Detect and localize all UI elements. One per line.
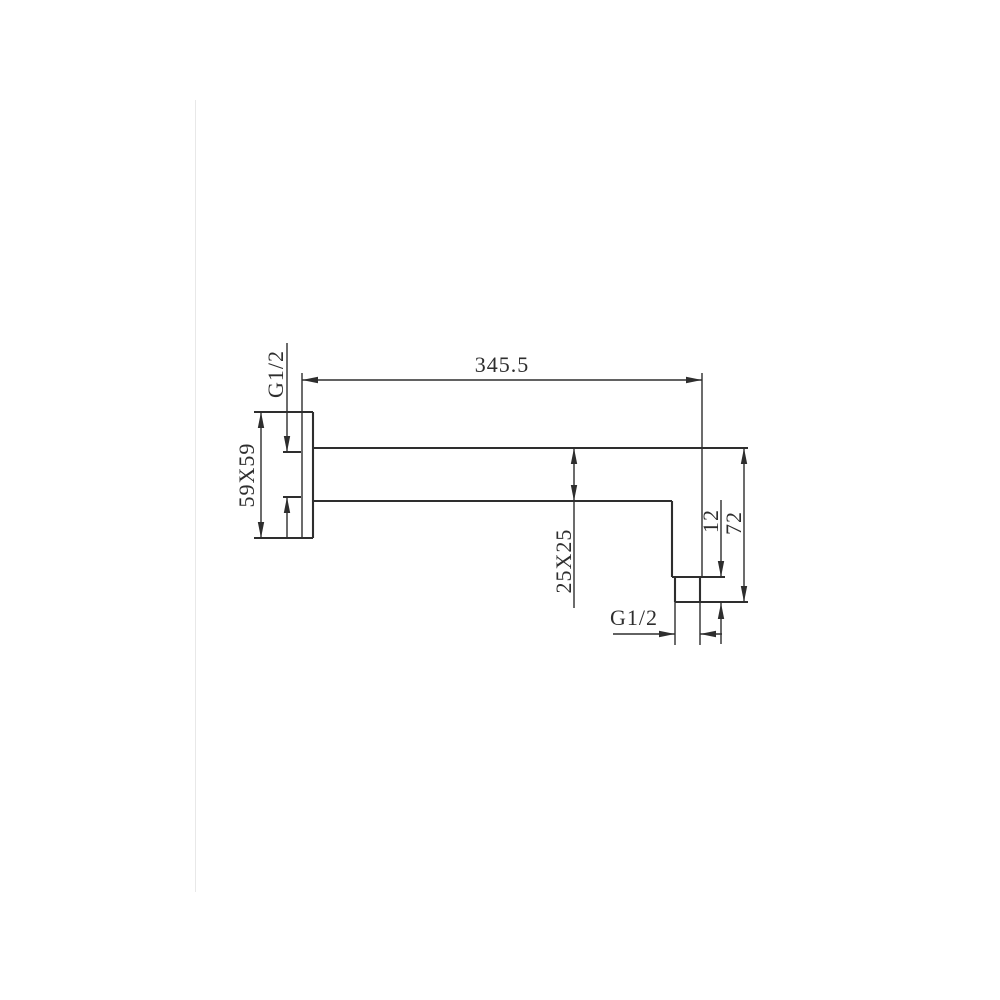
total-length-label: 345.5	[475, 352, 530, 377]
nipple-height-label: 12	[698, 509, 723, 533]
drawing-page: { "colors": { "ink": "#2e2e2e", "bg": "#…	[0, 0, 1000, 1000]
dimension-outlet-thread: G1/2	[610, 605, 722, 637]
arrow-down-icon	[258, 522, 264, 538]
dimension-flange-size: 59X59	[234, 412, 264, 538]
arrow-up-icon	[284, 497, 290, 513]
arrow-down-icon	[741, 586, 747, 602]
arrow-left-icon	[302, 377, 318, 383]
arm-section-label: 25X25	[551, 529, 576, 594]
dimension-inlet-thread: G1/2	[263, 343, 290, 537]
arrow-down-icon	[571, 485, 577, 501]
drop-height-label: 72	[721, 511, 746, 535]
arrow-up-icon	[258, 412, 264, 428]
arrow-down-icon	[718, 561, 724, 577]
arrow-right-icon	[686, 377, 702, 383]
shower-arm-technical-drawing: 345.5 G1/2 59X59 25X25 12 72	[0, 0, 1000, 1000]
dimension-drop-height: 72	[721, 448, 747, 602]
outlet-thread-label: G1/2	[610, 605, 658, 630]
arrow-right-icon	[659, 631, 675, 637]
arrow-up-icon	[718, 603, 724, 619]
arrow-up-icon	[571, 448, 577, 464]
arrow-down-icon	[284, 436, 290, 452]
flange-size-label: 59X59	[234, 443, 259, 508]
arm-and-elbow	[313, 373, 748, 577]
arrow-up-icon	[741, 448, 747, 464]
dimension-total-length: 345.5	[302, 352, 702, 383]
arrow-left-icon	[700, 631, 716, 637]
dimension-arm-cross-section: 25X25	[551, 448, 577, 608]
inlet-thread-label: G1/2	[263, 350, 288, 398]
